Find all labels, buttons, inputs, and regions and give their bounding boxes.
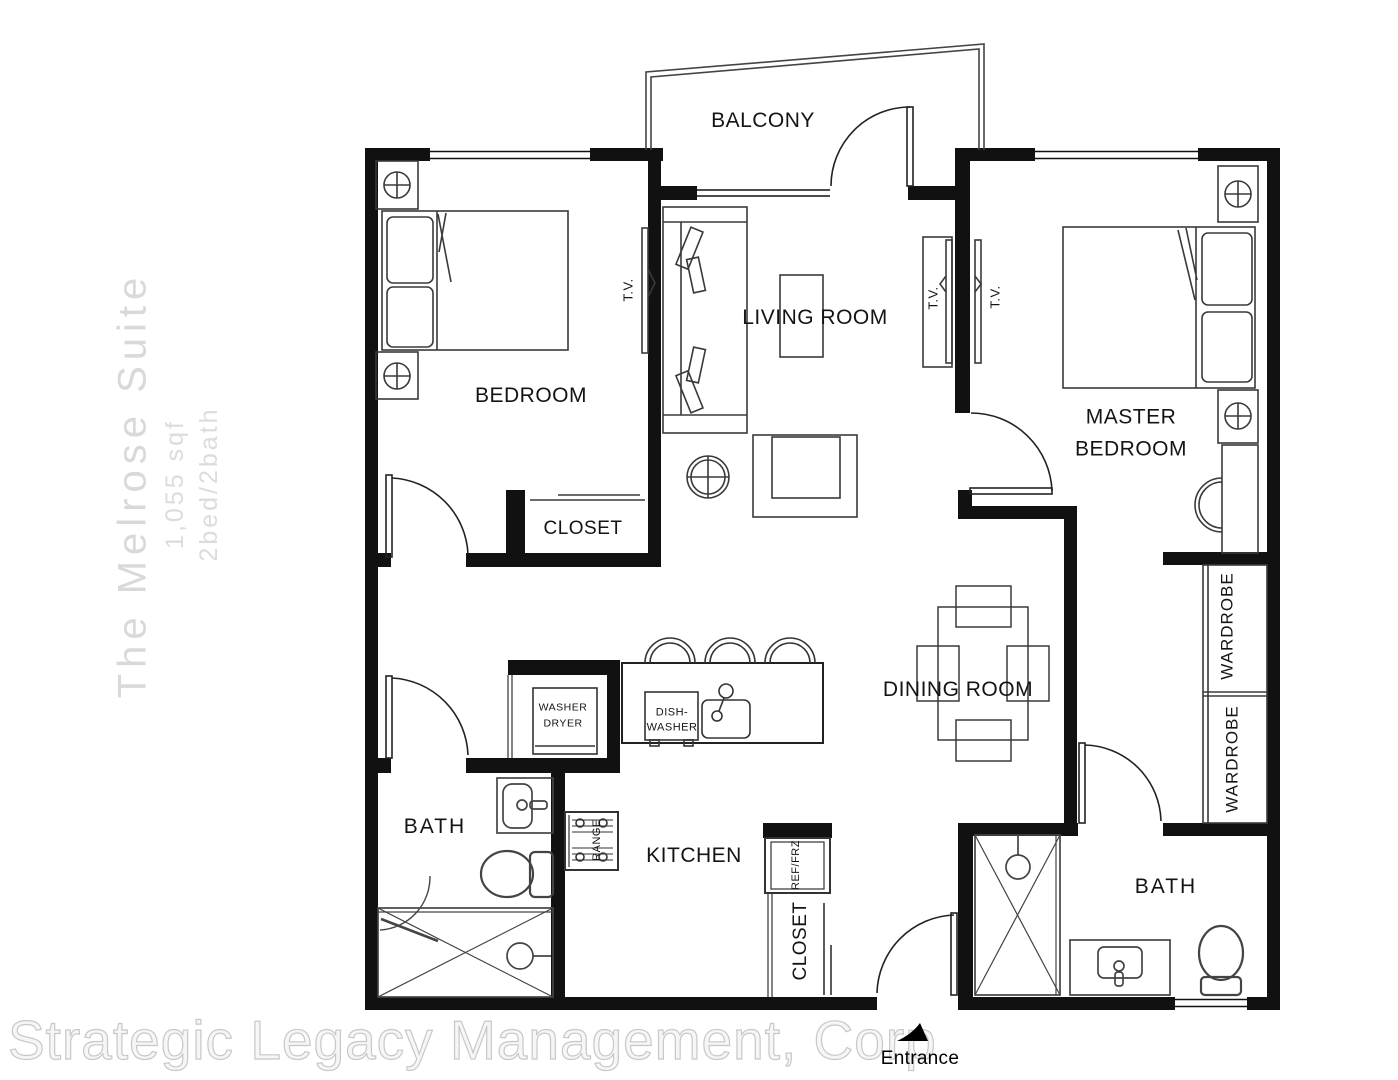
label-tv-master: T.V. (987, 285, 1006, 308)
label-dining-room: DINING ROOM (883, 675, 1033, 705)
entrance-arrow-icon (897, 1023, 928, 1041)
label-dishwasher: DISH- WASHER (647, 706, 698, 737)
label-refrigerator: REF/FRZ (789, 840, 805, 890)
floorplan-drawing (0, 0, 1398, 1080)
lamp-icon (384, 172, 410, 198)
label-bath-left: BATH (404, 812, 466, 842)
side-table-icon (687, 456, 729, 498)
floorplan-page: The Melrose Suite 1,055 sqf2bed/2bath St… (0, 0, 1398, 1080)
armchair (753, 435, 857, 517)
label-bedroom-closet: CLOSET (543, 515, 622, 543)
label-wardrobe-lower: WARDROBE (1221, 705, 1246, 813)
toilet (481, 851, 553, 897)
label-bath-right: BATH (1135, 872, 1197, 902)
label-washer-dryer: WASHER DRYER (539, 700, 588, 732)
label-entry-closet: CLOSET (787, 901, 815, 980)
doors (386, 107, 1161, 995)
label-master-bedroom: MASTER BEDROOM (1075, 402, 1187, 465)
kitchen-sink (702, 684, 750, 738)
label-range: RANGE (590, 819, 606, 861)
toilet (1199, 926, 1243, 995)
label-living-room: LIVING ROOM (742, 303, 888, 333)
bar-stools (645, 638, 815, 663)
label-bedroom: BEDROOM (475, 381, 587, 411)
bed (1063, 227, 1255, 388)
label-wardrobe-upper: WARDROBE (1216, 572, 1241, 680)
bedroom-furniture (376, 161, 655, 500)
sofa (663, 207, 747, 433)
master-furniture (1063, 166, 1258, 553)
balcony-outline (646, 44, 984, 150)
bath-right-fixtures (975, 835, 1243, 995)
lamp-icon (384, 363, 410, 389)
shower (378, 876, 553, 997)
label-kitchen: KITCHEN (646, 841, 742, 871)
label-tv-living: T.V. (925, 286, 944, 309)
label-balcony: BALCONY (711, 106, 815, 136)
shower (975, 835, 1060, 995)
vanity-sink (1070, 940, 1170, 995)
lamp-icon (1225, 181, 1251, 207)
label-tv-bedroom: T.V. (620, 278, 639, 301)
vanity-sink (497, 778, 553, 833)
bed (382, 211, 568, 350)
tv-master-icon (975, 240, 981, 363)
desk (1195, 445, 1258, 553)
dining-furniture (917, 586, 1049, 761)
lamp-icon (1225, 403, 1251, 429)
living-furniture (663, 207, 981, 517)
closet-rod (530, 495, 645, 500)
chair (1195, 478, 1222, 532)
label-entrance: Entrance (881, 1045, 959, 1073)
